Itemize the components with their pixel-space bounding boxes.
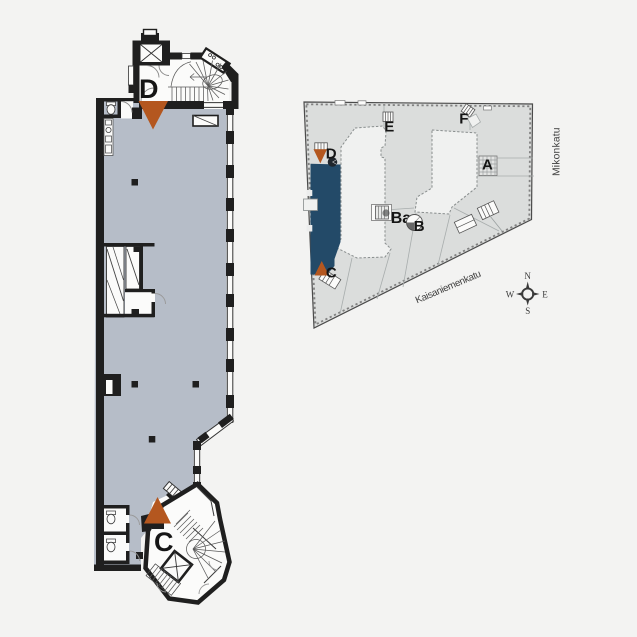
- svg-text:S: S: [525, 306, 530, 316]
- svg-text:D: D: [139, 74, 159, 104]
- svg-text:B: B: [414, 218, 425, 235]
- svg-text:E: E: [384, 119, 394, 136]
- svg-text:C: C: [154, 527, 174, 557]
- svg-text:C: C: [326, 265, 337, 282]
- svg-text:D: D: [326, 146, 337, 163]
- svg-text:N: N: [524, 271, 531, 281]
- svg-text:Mikonkatu: Mikonkatu: [552, 127, 563, 176]
- svg-text:A: A: [482, 156, 493, 173]
- svg-text:W: W: [506, 289, 515, 299]
- svg-text:E: E: [542, 289, 548, 299]
- svg-text:F: F: [459, 111, 468, 128]
